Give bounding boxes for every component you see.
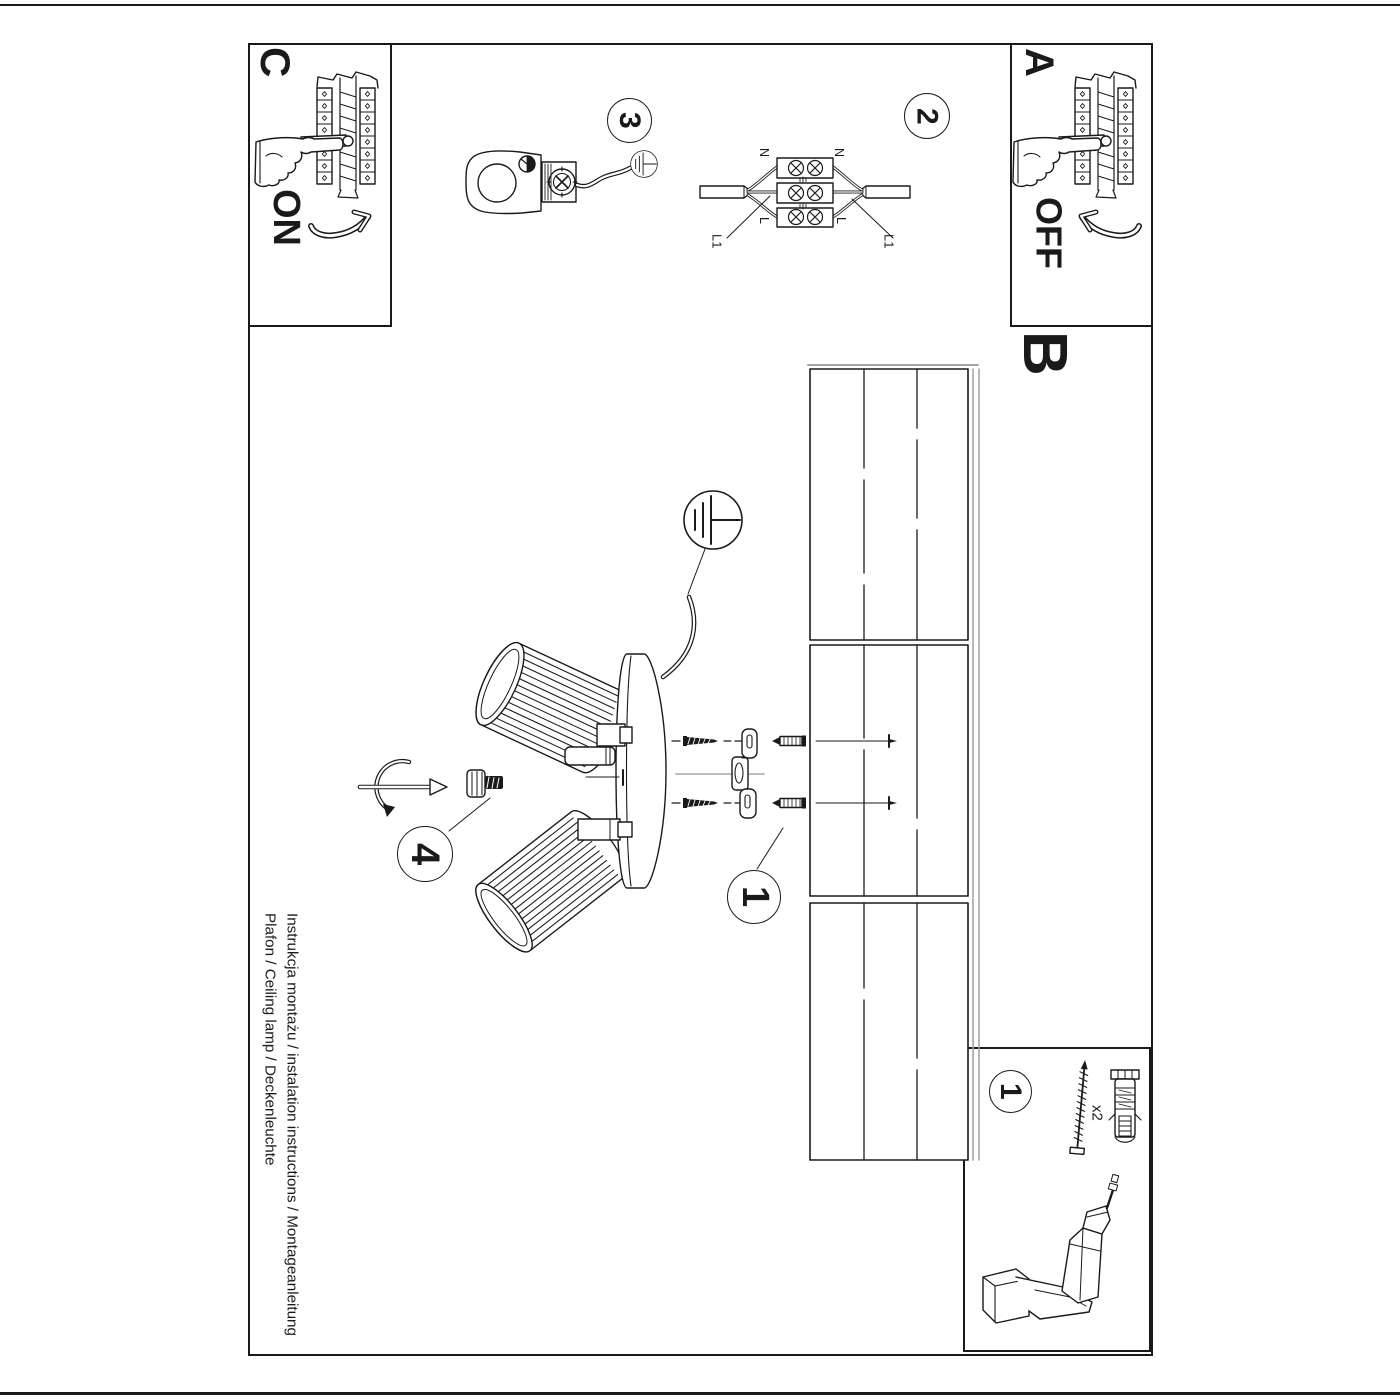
rotate-on-arrow-icon [311, 212, 369, 236]
screw-icon [467, 770, 503, 797]
power-off-label: OFF [1029, 197, 1069, 269]
wire-label-l1-left: L1 [709, 234, 723, 248]
terminal-label-l-left: L [756, 217, 770, 224]
instructions-title-line2: Plafon / Ceiling lamp / Deckenleuchte [261, 913, 278, 1165]
step-circle-4: 4 [397, 826, 453, 882]
section-a-label: A [1017, 48, 1061, 77]
drill-icon [983, 1174, 1119, 1323]
wires-left [748, 167, 777, 217]
rotate-off-arrow-icon [1081, 212, 1139, 236]
wires-right [833, 167, 862, 217]
step-circle-3: 3 [607, 98, 652, 143]
screw-icon [683, 798, 718, 808]
terminal-label-n-left: N [756, 148, 770, 157]
earth-connection [663, 491, 742, 677]
section-c-label: C [252, 47, 298, 77]
ceiling-planks [808, 365, 979, 1160]
step-circle-1-parts: 1 [989, 1070, 1032, 1113]
screw-icon [683, 736, 718, 746]
step-circle-2: 2 [904, 93, 950, 139]
terminal-label-n-right: N [831, 148, 845, 157]
section-b-label: B [1010, 331, 1078, 376]
wall-plug-icon [772, 798, 806, 809]
line-art-layer [0, 0, 1400, 1400]
parts-quantity-label: x2 [1088, 1105, 1105, 1121]
wall-plug-icon [1109, 1070, 1141, 1142]
thumb-screw-illustration [360, 761, 503, 831]
step-number: 3 [613, 112, 646, 129]
step-number: 2 [911, 108, 944, 125]
leader-line [757, 828, 783, 869]
terminal-block-illustration [700, 158, 910, 238]
earth-wire [663, 597, 694, 677]
cable-clamp-illustration [466, 151, 657, 214]
power-on-label: ON [264, 189, 306, 246]
wall-plug-icon [772, 736, 806, 747]
step-circle-1-assembly: 1 [727, 870, 781, 924]
terminal-label-l-right: L [833, 217, 847, 224]
manual-page: C A B ON OFF 3 2 4 1 1 N N L L L1 L1 x2 … [0, 0, 1400, 1400]
step-number: 1 [733, 886, 775, 907]
earth-wire [577, 168, 630, 186]
earth-ground-icon [684, 491, 742, 549]
instructions-title-line1: Instrukcja montażu / instalation instruc… [283, 913, 300, 1336]
step-number: 1 [994, 1083, 1027, 1100]
wire-label-l1-right: L1 [881, 234, 895, 248]
step-number: 4 [403, 843, 447, 865]
earth-ground-icon [631, 151, 658, 178]
